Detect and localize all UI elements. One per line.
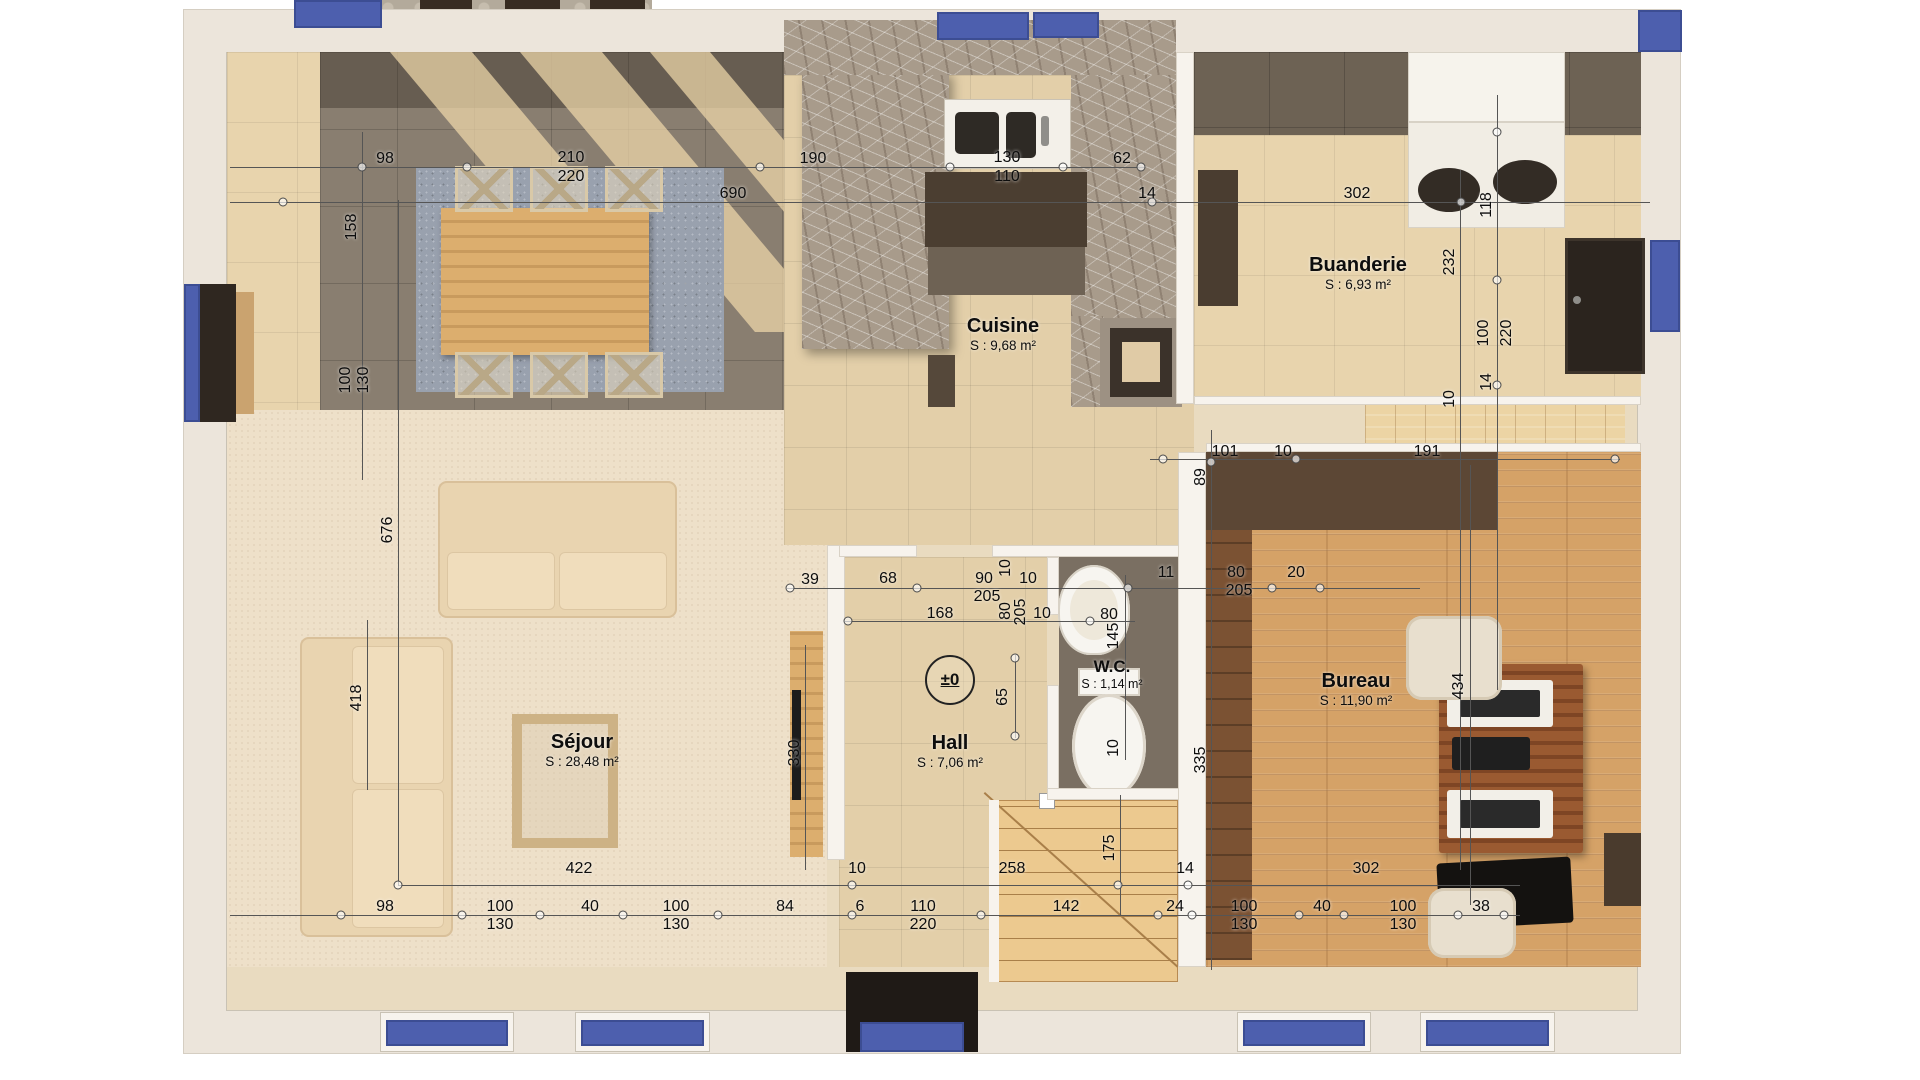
dim-label: 130 (1390, 916, 1417, 934)
dim-label: 110 (994, 168, 1020, 186)
dim-label: 20 (1287, 564, 1305, 582)
dim-label: 68 (879, 570, 897, 588)
dim-label: 232 (1441, 249, 1459, 276)
dim-label: 100 (337, 367, 355, 394)
level-marker-text: ±0 (941, 670, 960, 690)
dim-label: 100 (663, 898, 690, 916)
floor-plan-canvas: 98 210 220 190 130 110 62 690 14 302 118… (0, 0, 1920, 1080)
room-label-cuisine: Cuisine S : 9,68 m² (967, 315, 1039, 353)
kitchen-cabinet (928, 355, 955, 407)
dimension-line (1497, 95, 1498, 690)
dim-label: 422 (566, 860, 593, 878)
dim-label: 89 (1192, 468, 1210, 486)
room-name: Buanderie (1309, 254, 1407, 277)
dim-label: 40 (581, 898, 599, 916)
dining-chair (605, 166, 663, 212)
dimension-tick (1159, 455, 1168, 464)
dim-label: 14 (1176, 860, 1194, 878)
dimension-tick (1086, 617, 1095, 626)
dim-label: 130 (994, 149, 1021, 167)
dim-label: 24 (1166, 898, 1184, 916)
window-top-center (937, 12, 1029, 40)
dim-label: 175 (1101, 835, 1119, 862)
dimension-tick (977, 911, 986, 920)
dimension-tick (1154, 911, 1163, 920)
dim-label: 130 (487, 916, 514, 934)
dimension-tick (1454, 911, 1463, 920)
dim-label: 10 (1441, 390, 1459, 408)
dim-label: 10 (1105, 739, 1123, 757)
wall-hall-top-b (992, 545, 1186, 557)
dim-label: 110 (910, 898, 936, 916)
dimension-tick (913, 584, 922, 593)
dim-label: 65 (994, 688, 1012, 706)
dim-label: 39 (801, 571, 819, 589)
dimension-line (398, 885, 1520, 886)
room-label-sejour: Séjour S : 28,48 m² (545, 731, 619, 769)
dimension-tick (458, 911, 467, 920)
dim-label: 101 (1212, 443, 1239, 461)
dim-label: 84 (776, 898, 794, 916)
dim-label: 130 (1231, 916, 1258, 934)
dim-label: 100 (1475, 320, 1493, 347)
dimension-tick (1188, 911, 1197, 920)
dining-chair (530, 352, 588, 398)
window-top-right-corner (1638, 10, 1682, 52)
dimension-tick (1457, 198, 1466, 207)
dimension-tick (1268, 584, 1277, 593)
dim-label: 10 (848, 860, 866, 878)
room-name: Hall (917, 732, 983, 755)
dim-label: 80 (1227, 564, 1245, 582)
dim-label: 100 (487, 898, 514, 916)
kitchen-counter-shadow (928, 247, 1085, 295)
dimension-tick (1295, 911, 1304, 920)
appliance-counter (1408, 52, 1565, 122)
dimension-line (230, 202, 1650, 203)
dimension-tick (619, 911, 628, 920)
room-name: W.C. (1081, 657, 1142, 677)
dimension-tick (1124, 584, 1133, 593)
dimension-tick (1011, 732, 1020, 741)
wall-wc-bureau (1178, 452, 1206, 967)
window-left-sill (236, 292, 254, 414)
dimension-line (1470, 465, 1471, 905)
monitor (1460, 800, 1540, 828)
dimension-tick (1184, 881, 1193, 890)
dimension-tick (1500, 911, 1509, 920)
room-label-buanderie: Buanderie S : 6,93 m² (1309, 254, 1407, 292)
window-bottom-right-2 (1426, 1020, 1549, 1046)
dim-label: 205 (1226, 582, 1253, 600)
marble-strip (1071, 316, 1103, 407)
dimension-line (805, 645, 806, 870)
dim-label: 100 (1231, 898, 1258, 916)
wall-wc-left-b (1047, 685, 1059, 800)
wall-cuisine-buanderie (1176, 52, 1194, 404)
dining-chair (455, 166, 513, 212)
dim-label: 118 (1478, 192, 1496, 218)
dim-label: 62 (1113, 150, 1131, 168)
dimension-tick (1316, 584, 1325, 593)
dim-label: 40 (1313, 898, 1331, 916)
dimension-tick (1340, 911, 1349, 920)
dimension-line (787, 588, 1420, 589)
room-label-bureau: Bureau S : 11,90 m² (1320, 670, 1393, 708)
room-name: Séjour (545, 731, 619, 754)
dim-label: 10 (997, 559, 1015, 577)
room-area: S : 9,68 m² (967, 338, 1039, 353)
window-left-frame (200, 284, 236, 422)
wall-sejour-hall (827, 545, 845, 860)
dimension-tick (1611, 455, 1620, 464)
dim-label: 145 (1105, 623, 1123, 650)
dim-label: 210 (558, 149, 585, 167)
dimension-line (1120, 795, 1121, 915)
window-right (1650, 240, 1680, 332)
dimension-tick (463, 163, 472, 172)
kitchen-island-box-inner (1122, 342, 1160, 382)
bureau-recess (1604, 833, 1641, 906)
window-bottom-left-2 (581, 1020, 704, 1046)
dim-label: 258 (999, 860, 1026, 878)
dim-label: 80 (1100, 606, 1118, 624)
dim-label: 142 (1053, 898, 1080, 916)
dim-label: 302 (1344, 185, 1371, 203)
window-bottom-left-1 (386, 1020, 508, 1046)
window-top-left (294, 0, 382, 28)
dim-label: 158 (343, 214, 361, 241)
buanderie-cabinet (1198, 170, 1238, 306)
window-top-center-2 (1033, 12, 1099, 38)
room-area: S : 7,06 m² (917, 755, 983, 770)
dim-label: 11 (1158, 564, 1175, 582)
sofa-cushion (559, 552, 667, 610)
door-handle (1573, 296, 1581, 304)
dim-label: 130 (355, 367, 373, 394)
dim-label: 6 (856, 898, 865, 916)
dimension-tick (536, 911, 545, 920)
dimension-tick (844, 617, 853, 626)
sink-basin (955, 112, 999, 154)
dim-label: 205 (1012, 599, 1030, 626)
desk-pad (1452, 737, 1530, 770)
dim-label: 690 (720, 185, 747, 203)
dimension-tick (394, 881, 403, 890)
room-area: S : 6,93 m² (1309, 277, 1407, 292)
dimension-tick (946, 163, 955, 172)
dim-label: 14 (1478, 373, 1496, 391)
room-area: S : 11,90 m² (1320, 693, 1393, 708)
dimension-line (398, 200, 399, 885)
dimension-tick (1493, 276, 1502, 285)
dim-label: 434 (1450, 673, 1468, 700)
room-name: Bureau (1320, 670, 1393, 693)
dimension-line (1460, 170, 1461, 870)
dim-label: 10 (1019, 570, 1037, 588)
dim-label: 191 (1414, 443, 1441, 461)
wall-hall-top-a (839, 545, 917, 557)
dimension-line (362, 132, 363, 480)
dim-label: 190 (800, 150, 827, 168)
washer-lid (1418, 168, 1480, 212)
room-label-hall: Hall S : 7,06 m² (917, 732, 983, 770)
dim-label: 90 (975, 570, 993, 588)
dim-label: 100 (1390, 898, 1417, 916)
level-marker: ±0 (925, 655, 975, 705)
dim-label: 14 (1138, 185, 1156, 203)
dim-label: 10 (1033, 605, 1051, 623)
window-left (184, 284, 200, 422)
dimension-tick (1137, 163, 1146, 172)
dimension-tick (1493, 128, 1502, 137)
dimension-tick (756, 163, 765, 172)
dining-table (441, 208, 649, 355)
dim-label: 676 (379, 517, 397, 544)
dimension-line (367, 620, 368, 790)
dimension-tick (358, 163, 367, 172)
room-area: S : 28,48 m² (545, 754, 619, 769)
dim-label: 220 (910, 916, 937, 934)
room-name: Cuisine (967, 315, 1039, 338)
dim-label: 10 (1274, 443, 1292, 461)
dim-label: 220 (558, 168, 585, 186)
dimension-line (1211, 430, 1212, 970)
room-label-wc: W.C. S : 1,14 m² (1081, 657, 1142, 691)
dim-label: 38 (1472, 898, 1490, 916)
dimension-line (1015, 655, 1016, 738)
dim-label: 335 (1192, 747, 1210, 774)
stair-rail (989, 800, 999, 982)
dimension-tick (1292, 455, 1301, 464)
dimension-tick (848, 881, 857, 890)
dim-label: 130 (663, 916, 690, 934)
dim-label: 302 (1353, 860, 1380, 878)
dim-label: 98 (376, 150, 394, 168)
window-bottom-right-1 (1243, 1020, 1365, 1046)
dimension-tick (337, 911, 346, 920)
dining-chair (605, 352, 663, 398)
dimension-tick (279, 198, 288, 207)
staircase (989, 800, 1178, 982)
dryer-lid (1493, 160, 1557, 204)
room-area: S : 1,14 m² (1081, 677, 1142, 691)
dim-label: 98 (376, 898, 394, 916)
wall-buanderie-bottom (1194, 396, 1641, 405)
dimension-tick (1059, 163, 1068, 172)
dimension-tick (786, 584, 795, 593)
entry-door-glass (860, 1022, 964, 1052)
dining-chair (455, 352, 513, 398)
dim-label: 418 (348, 685, 366, 712)
dim-label: 168 (927, 605, 954, 623)
dimension-tick (714, 911, 723, 920)
sink-faucet (1041, 116, 1049, 146)
sofa-cushion (447, 552, 555, 610)
dimension-tick (1011, 654, 1020, 663)
dim-label: 220 (1498, 320, 1516, 347)
dim-label: 330 (786, 740, 804, 767)
dimension-tick (1114, 881, 1123, 890)
buanderie-door (1565, 238, 1645, 374)
bureau-dark-band (1206, 452, 1497, 530)
